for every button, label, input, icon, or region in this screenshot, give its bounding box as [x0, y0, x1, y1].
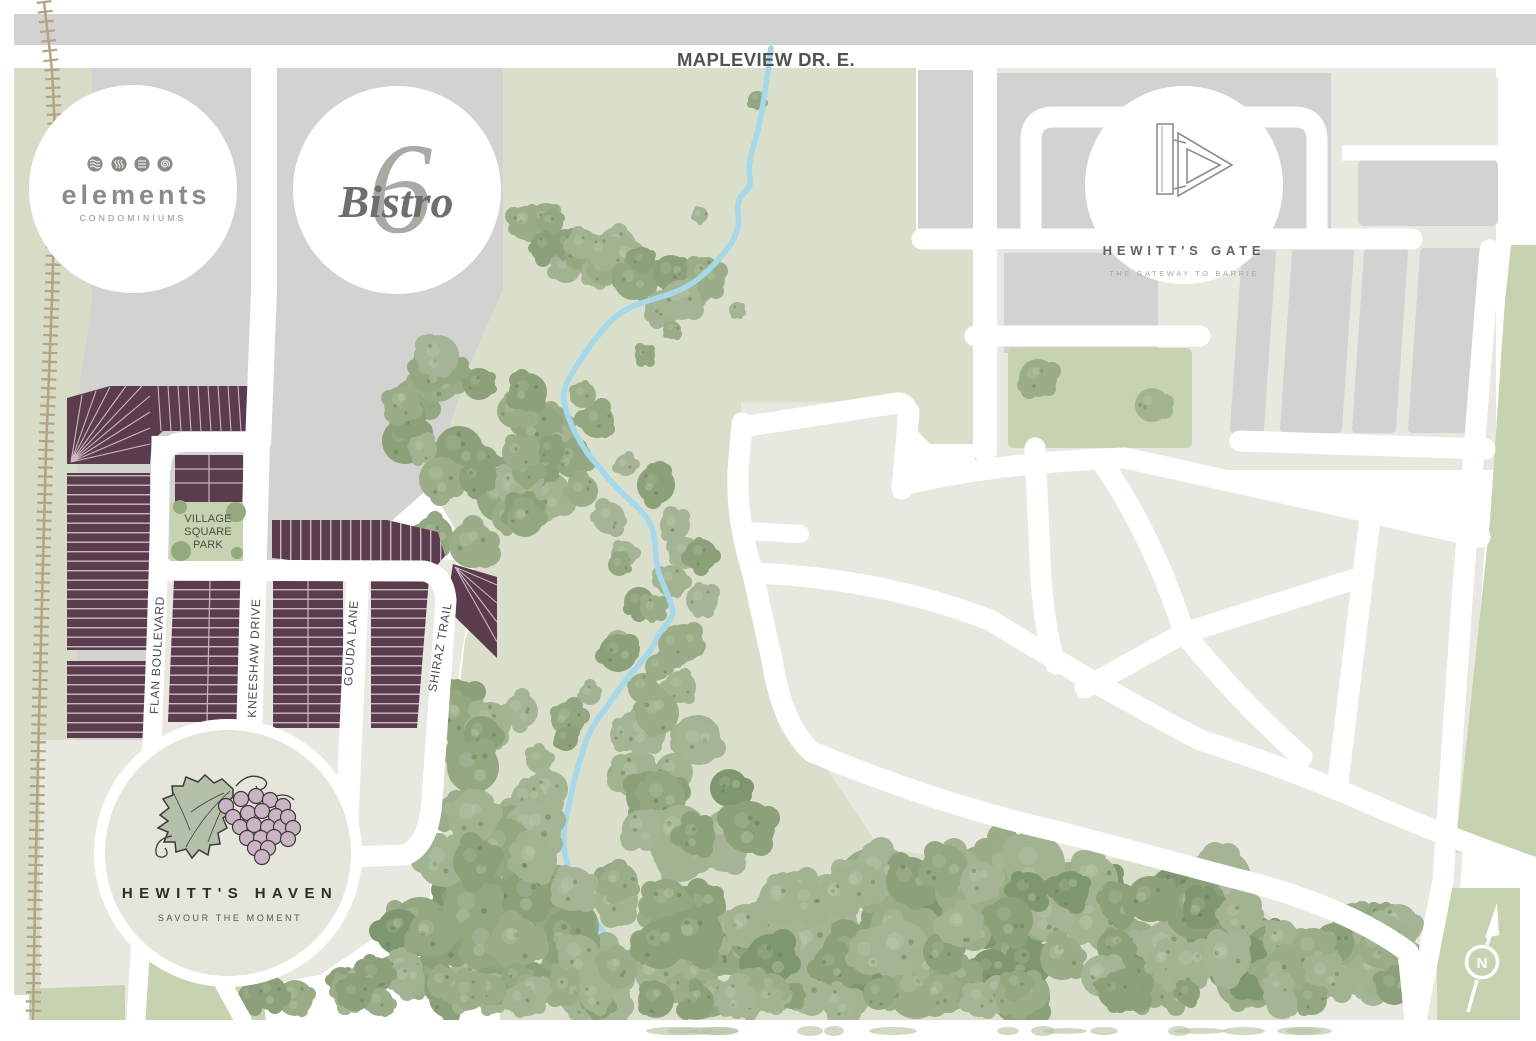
svg-text:HEWITT'S HAVEN: HEWITT'S HAVEN	[122, 885, 338, 902]
svg-text:HEWITT'S GATE: HEWITT'S GATE	[1103, 243, 1266, 258]
svg-text:MAPLEVIEW DR. E.: MAPLEVIEW DR. E.	[677, 49, 855, 70]
svg-text:Bistro: Bistro	[337, 176, 453, 227]
svg-text:PARK: PARK	[193, 539, 223, 551]
svg-text:SAVOUR THE MOMENT: SAVOUR THE MOMENT	[158, 913, 302, 923]
svg-text:elements: elements	[61, 180, 210, 210]
svg-text:CONDOMINIUMS: CONDOMINIUMS	[80, 213, 187, 223]
svg-text:N: N	[1477, 955, 1488, 972]
svg-text:SQUARE: SQUARE	[184, 526, 232, 538]
svg-text:THE GATEWAY TO BARRIE: THE GATEWAY TO BARRIE	[1109, 269, 1259, 278]
svg-text:VILLAGE: VILLAGE	[184, 513, 231, 525]
